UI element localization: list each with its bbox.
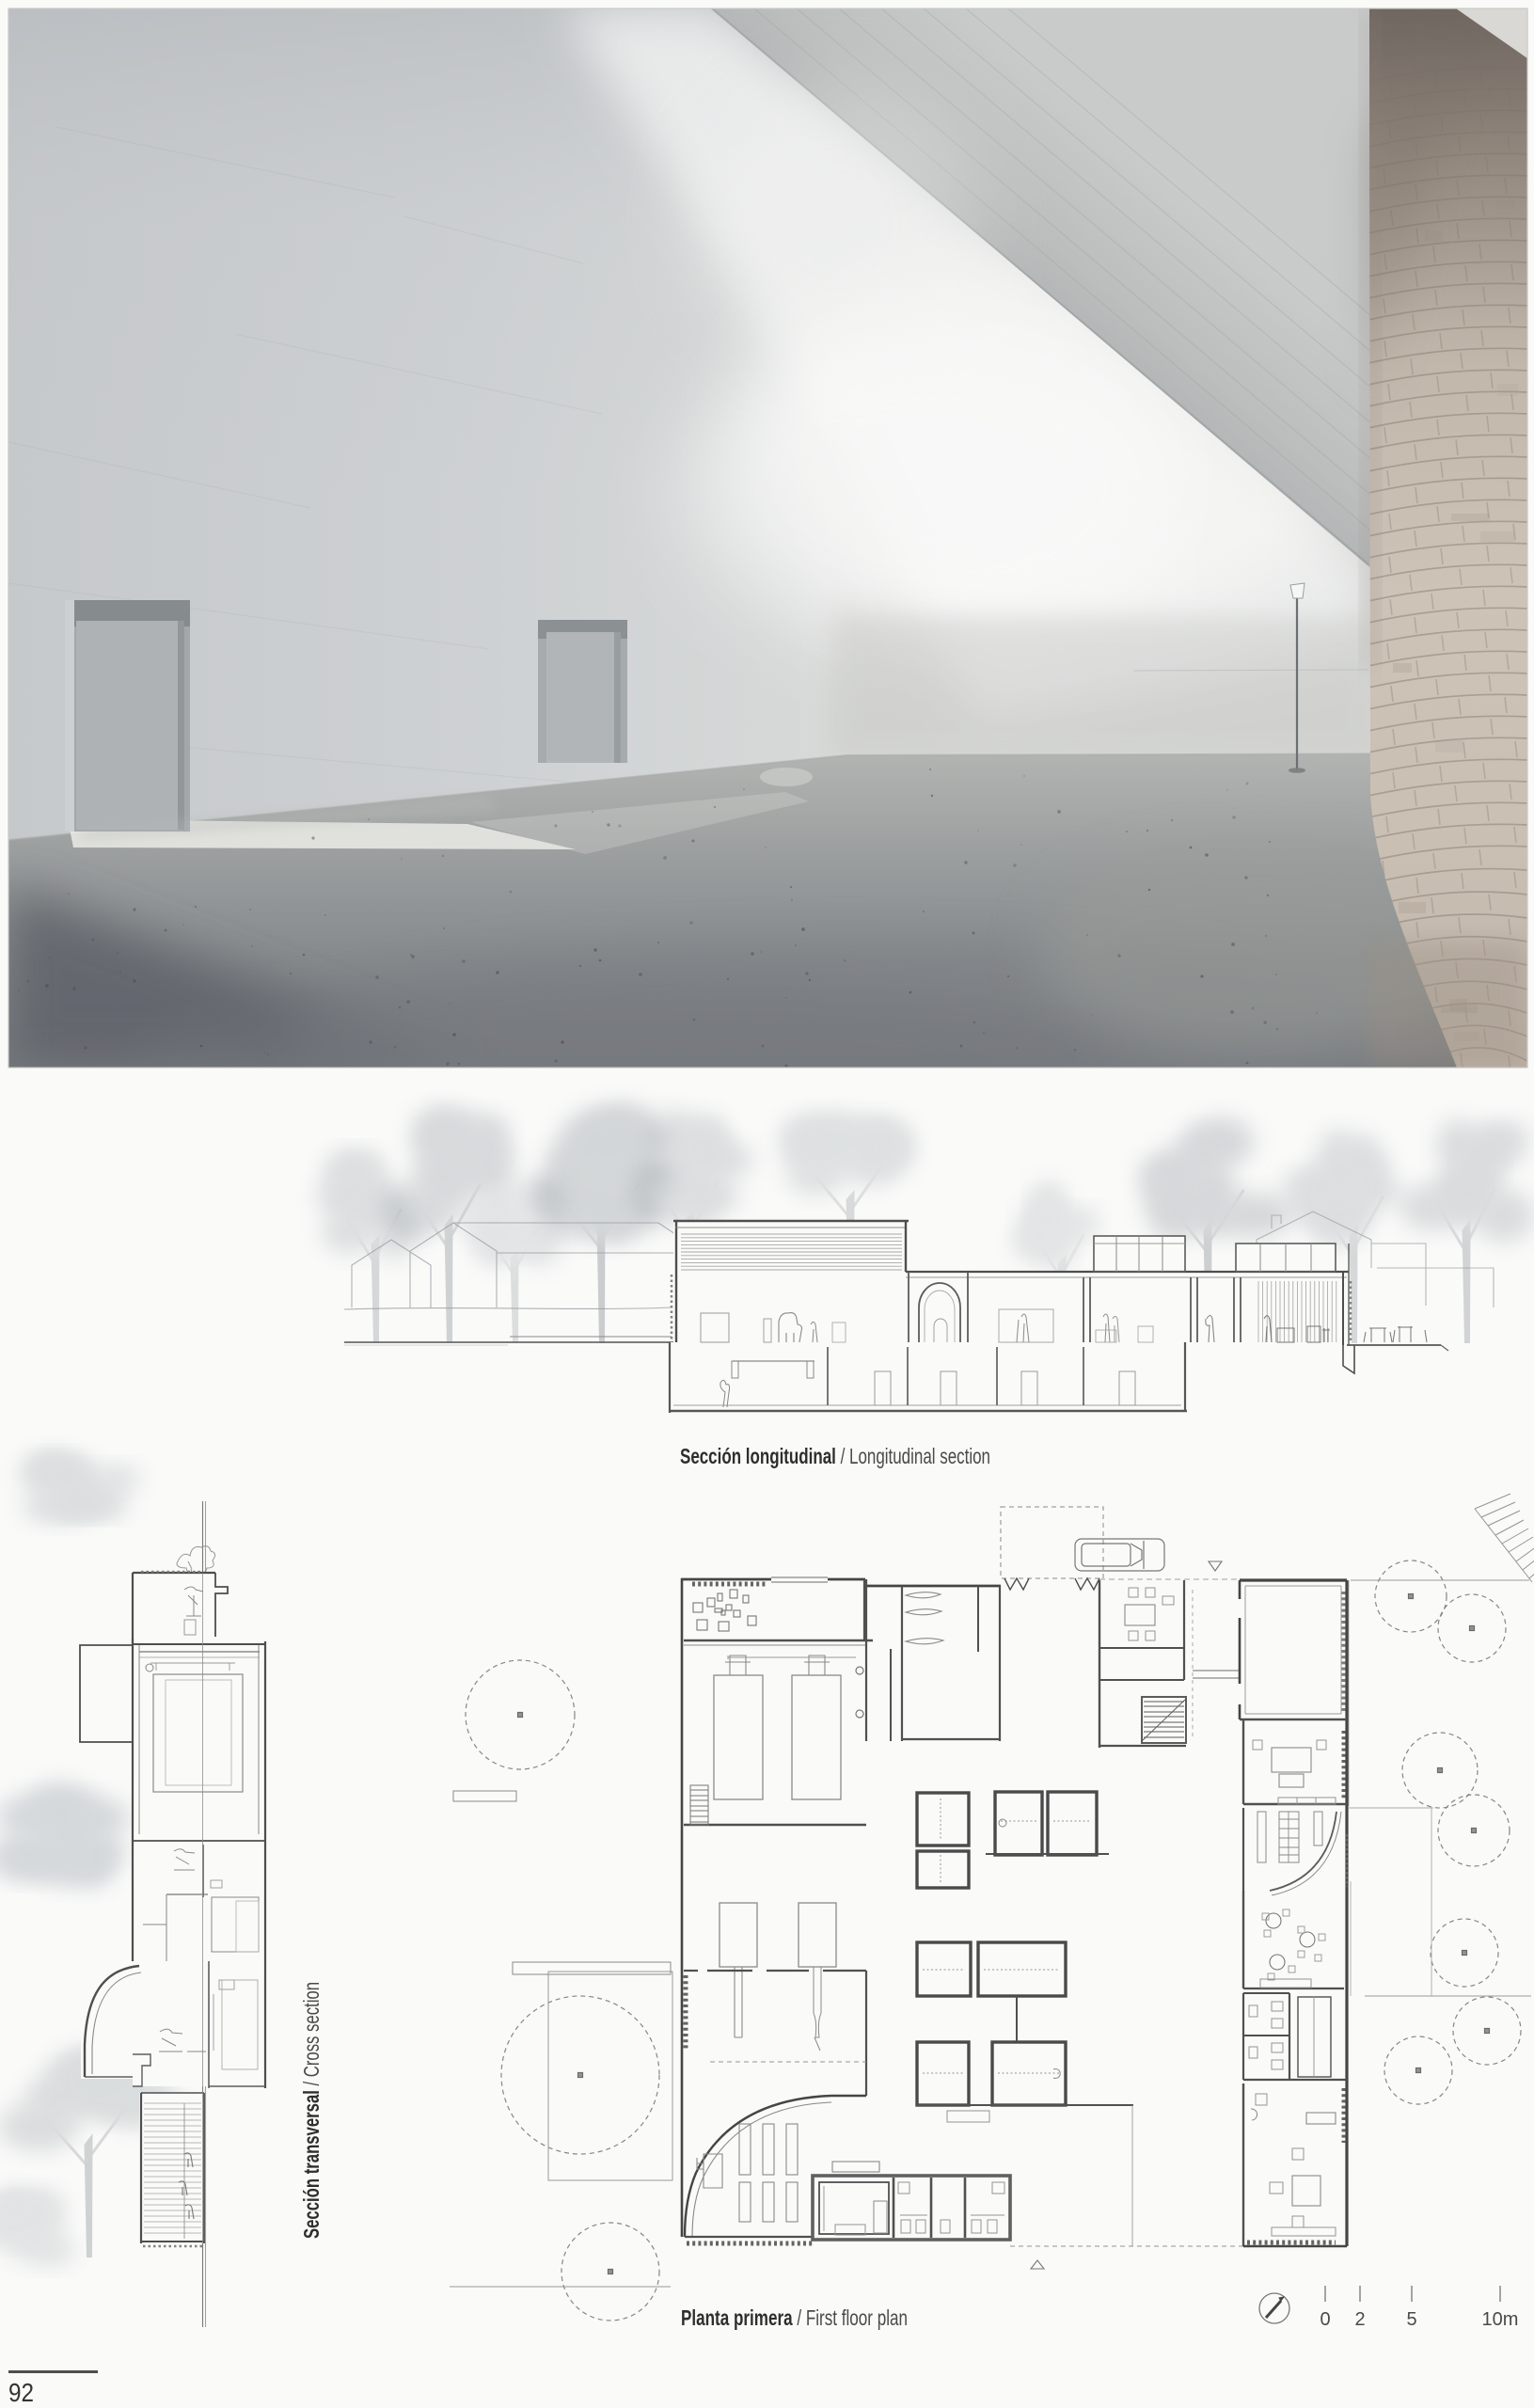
- svg-text:0: 0: [1320, 2309, 1330, 2330]
- svg-text:92: 92: [8, 2378, 34, 2407]
- svg-text:2: 2: [1354, 2309, 1365, 2330]
- svg-text:10m: 10m: [1482, 2309, 1519, 2330]
- svg-text:Sección longitudinal / Longitu: Sección longitudinal / Longitudinal sect…: [680, 1444, 990, 1468]
- svg-text:5: 5: [1406, 2309, 1416, 2330]
- svg-text:Sección transversal / Cross se: Sección transversal / Cross section: [299, 1982, 324, 2239]
- svg-text:Planta primera / First floor p: Planta primera / First floor plan: [681, 2305, 908, 2330]
